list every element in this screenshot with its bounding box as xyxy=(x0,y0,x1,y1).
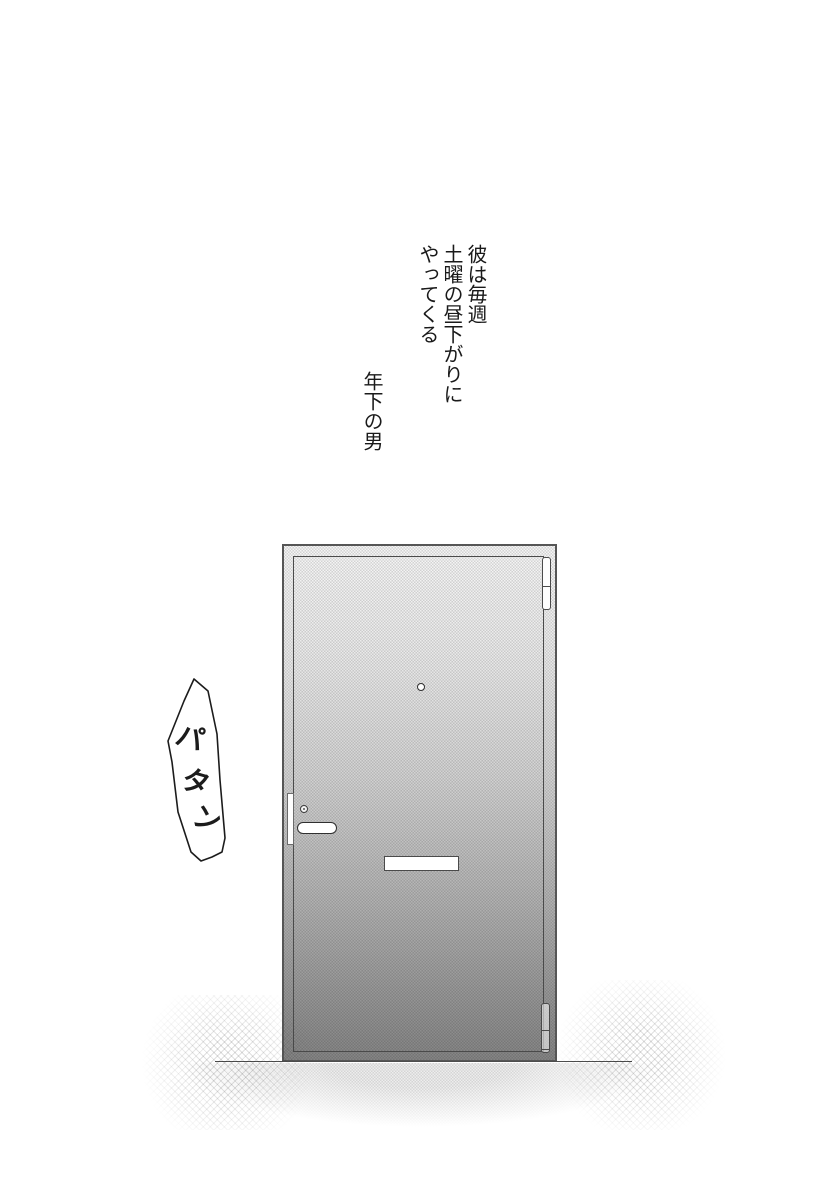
door-handle xyxy=(297,822,337,834)
caption-intro: 彼は毎週 土曜の昼下がりに やってくる xyxy=(415,244,487,416)
door xyxy=(282,544,557,1062)
hatch-texture-left xyxy=(128,995,328,1130)
caption-title: 年下の男 xyxy=(359,371,382,451)
caption-line: 彼は毎週 xyxy=(463,244,487,416)
door-peephole-icon xyxy=(417,683,425,691)
door-edge-plate xyxy=(287,793,294,845)
door-lock-cylinder-icon xyxy=(300,805,308,813)
door-hinge-top-icon xyxy=(542,557,551,610)
door-nameplate xyxy=(384,856,459,871)
caption-line: やってくる xyxy=(415,244,439,416)
sfx-bubble: パ タ ン xyxy=(158,668,236,868)
door-panel xyxy=(293,556,544,1052)
caption-line: 土曜の昼下がりに xyxy=(439,244,463,416)
hinge-divider xyxy=(543,586,550,587)
hatch-texture-right xyxy=(548,980,733,1130)
lock-keyhole-dot xyxy=(303,808,305,810)
manga-page: 彼は毎週 土曜の昼下がりに やってくる 年下の男 パ タ ン xyxy=(0,0,840,1200)
